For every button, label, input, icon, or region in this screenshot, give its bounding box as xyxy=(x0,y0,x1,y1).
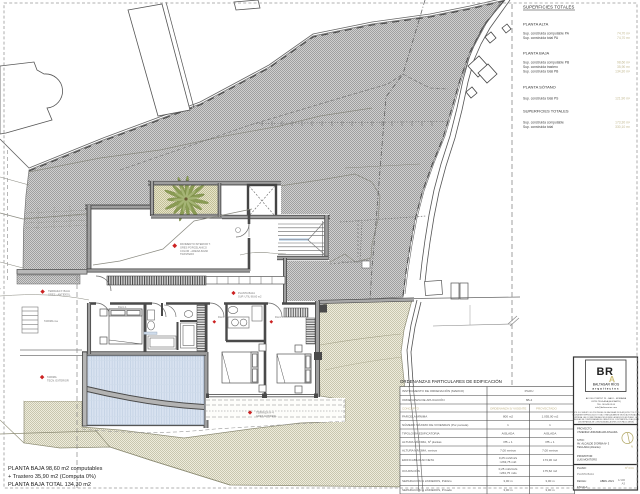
svg-text:Sup. construida total PS: Sup. construida total PS xyxy=(523,97,559,101)
svg-text:PLANTA BAJA: PLANTA BAJA xyxy=(577,472,594,476)
svg-text:Sup. construida computable PA: Sup. construida computable PA xyxy=(523,32,570,36)
svg-text:74,70 m²: 74,70 m² xyxy=(617,36,631,40)
svg-text:PROYECTO:: PROYECTO: xyxy=(577,427,593,431)
svg-text:GRES ANTIDESL.: GRES ANTIDESL. xyxy=(256,414,278,418)
svg-text:Sup. construida trastero: Sup. construida trastero xyxy=(523,65,558,69)
svg-text:NÚMERO MÁXIMO DE VIVIENDAS (Po: NÚMERO MÁXIMO DE VIVIENDAS (Por parcela) xyxy=(402,422,468,427)
svg-text:330,10 m²: 330,10 m² xyxy=(615,125,631,129)
svg-text:PAVIMENTO INTERIOR T.: PAVIMENTO INTERIOR T. xyxy=(180,242,211,246)
svg-text:OCUPACIÓN: OCUPACIÓN xyxy=(402,468,420,473)
svg-text:173,30 m2: 173,30 m2 xyxy=(543,458,558,462)
svg-text:FECHA:: FECHA: xyxy=(577,479,587,483)
svg-text:COLOR - ARENA 60x60: COLOR - ARENA 60x60 xyxy=(180,249,209,253)
svg-text:PLANTA BAJA: PLANTA BAJA xyxy=(238,291,255,295)
svg-text:Nº 03.b: Nº 03.b xyxy=(625,466,635,470)
svg-text:INSTRUMENTO DE ORDENACIÓN (MAR: INSTRUMENTO DE ORDENACIÓN (MARCO) xyxy=(402,388,464,393)
svg-text:Dorm 2: Dorm 2 xyxy=(218,315,227,319)
svg-text:TARIMA: TARIMA xyxy=(47,375,57,379)
svg-text:TARIMA ma: TARIMA ma xyxy=(44,319,58,323)
svg-text:GRES - ANTIDESL.: GRES - ANTIDESL. xyxy=(48,292,71,296)
svg-text:LUIS MONTORO: LUIS MONTORO xyxy=(577,458,597,462)
svg-text:PROMOTOR:: PROMOTOR: xyxy=(577,454,593,458)
svg-text:PLANTA ALTA: PLANTA ALTA xyxy=(523,22,549,27)
svg-text:AISLADA: AISLADA xyxy=(544,432,557,436)
svg-text:PLANTA BAJA: PLANTA BAJA xyxy=(523,51,549,56)
svg-text:1.055,00 m2: 1.055,00 m2 xyxy=(542,415,559,419)
svg-text:PB + 1: PB + 1 xyxy=(503,440,512,444)
svg-text:121,90 m²: 121,90 m² xyxy=(615,97,631,101)
svg-text:7,00 metros: 7,00 metros xyxy=(500,449,516,453)
svg-text:AISLADA: AISLADA xyxy=(502,432,515,436)
svg-text:arquitectos: arquitectos xyxy=(592,386,619,390)
svg-text:PLANTA BAJA TOTAL 134,30 m2: PLANTA BAJA TOTAL 134,30 m2 xyxy=(8,482,91,488)
svg-text:TERRAZA Nº 4: TERRAZA Nº 4 xyxy=(256,411,274,415)
svg-text:GRES PORCELANICO: GRES PORCELANICO xyxy=(180,245,207,249)
svg-text:VIVIENDA UNIFAMILIAR AISLADA: VIVIENDA UNIFAMILIAR AISLADA xyxy=(577,430,618,434)
svg-text:SITIO:: SITIO: xyxy=(577,438,585,442)
svg-text:Sup. construida total PA: Sup. construida total PA xyxy=(523,36,559,40)
svg-text:TIPOLOGÍA EDIFICATORIA: TIPOLOGÍA EDIFICATORIA xyxy=(402,432,440,436)
svg-text:3,00 m: 3,00 m xyxy=(503,488,513,492)
svg-text:134,30 m²: 134,30 m² xyxy=(615,69,631,73)
svg-text:PLANO:: PLANO: xyxy=(577,466,587,470)
svg-text:PROYECTADO: PROYECTADO xyxy=(536,407,557,411)
svg-text:TEL. 96 649 03 06: TEL. 96 649 03 06 xyxy=(597,404,616,406)
svg-text:A3: A3 xyxy=(622,482,626,486)
svg-text:PB + 1: PB + 1 xyxy=(545,440,554,444)
svg-text:03724 TEULADA (ALICANTE): 03724 TEULADA (ALICANTE) xyxy=(591,400,621,403)
svg-text:TEULADA (Alicante): TEULADA (Alicante) xyxy=(577,445,601,449)
svg-text:TRASTERO: TRASTERO xyxy=(180,252,194,256)
svg-text:SUPERFICIES TOTALES: SUPERFICIES TOTALES xyxy=(523,109,569,114)
svg-text:AV. DEL PORTET 25 - BAJO - MOR: AV. DEL PORTET 25 - BAJO - MORAIRA xyxy=(586,397,627,400)
svg-text:Sup. construida computable PB: Sup. construida computable PB xyxy=(523,61,570,65)
svg-text:173,30 m²: 173,30 m² xyxy=(615,121,631,125)
svg-text:3,00 m: 3,00 m xyxy=(503,479,513,483)
svg-text:+ Trastero 35,90 m2 (Computa 0: + Trastero 35,90 m2 (Computa 0%) xyxy=(8,474,96,480)
svg-text:AV. ALCALDE D'ORBA Nº 3: AV. ALCALDE D'ORBA Nº 3 xyxy=(577,442,610,446)
svg-text:ALTURA MÁXIMA, Nº plantas: ALTURA MÁXIMA, Nº plantas xyxy=(402,440,442,444)
svg-text:SUPERFICIES TOTALES: SUPERFICIES TOTALES xyxy=(523,5,575,10)
svg-text:DISCREPANCIA SE COMUNICARA A L: DISCREPANCIA SE COMUNICARA A LA DIRECCIO… xyxy=(578,421,635,424)
svg-text:Sup. construida total PB: Sup. construida total PB xyxy=(523,69,559,73)
svg-text:≈263,75 m2t: ≈263,75 m2t xyxy=(500,460,517,464)
svg-text:ORDENANZA DE APLICACIÓN: ORDENANZA DE APLICACIÓN xyxy=(402,397,445,402)
svg-text:≈263,75 m2s: ≈263,75 m2s xyxy=(499,471,517,475)
svg-text:info@baltasarrios.com: info@baltasarrios.com xyxy=(595,406,617,409)
svg-text:Sup. construida total: Sup. construida total xyxy=(523,125,553,129)
svg-text:ALTURA MÁXIMA, metros: ALTURA MÁXIMA, metros xyxy=(402,449,437,453)
svg-text:Dorm 1: Dorm 1 xyxy=(118,305,127,309)
svg-text:Sup. construida computable: Sup. construida computable xyxy=(523,121,564,125)
svg-text:TERRAZA P. BAJA: TERRAZA P. BAJA xyxy=(48,289,70,293)
svg-text:Dorm 3: Dorm 3 xyxy=(275,315,284,319)
svg-text:3,00 m: 3,00 m xyxy=(545,479,555,483)
svg-text:98,60 m²: 98,60 m² xyxy=(617,61,631,65)
svg-text:175,62 m2: 175,62 m2 xyxy=(543,469,558,473)
svg-text:CONCEPTO: CONCEPTO xyxy=(402,407,420,411)
svg-text:PGOU: PGOU xyxy=(525,389,534,393)
svg-text:800 m2: 800 m2 xyxy=(503,415,513,419)
svg-text:N: N xyxy=(631,445,633,449)
svg-text:PLANTA BAJA 98,60 m2 computabl: PLANTA BAJA 98,60 m2 computables xyxy=(8,466,103,472)
svg-text:6B-4: 6B-4 xyxy=(526,398,533,402)
svg-text:TECN. EXTERIOR: TECN. EXTERIOR xyxy=(47,378,69,382)
svg-text:74,70 m²: 74,70 m² xyxy=(617,32,631,36)
svg-text:SEPARACIÓN A LINDEROS, Público: SEPARACIÓN A LINDEROS, Público xyxy=(402,478,452,483)
svg-text:EDIFICABILIDAD NETA: EDIFICABILIDAD NETA xyxy=(402,458,434,462)
svg-text:PARCELA MÍNIMA: PARCELA MÍNIMA xyxy=(402,415,427,419)
svg-text:ABRIL 2021: ABRIL 2021 xyxy=(600,479,614,483)
svg-text:7,00 metros: 7,00 metros xyxy=(542,449,558,453)
svg-text:3,00 m: 3,00 m xyxy=(545,488,555,492)
svg-text:PLANTA SÓTANO: PLANTA SÓTANO xyxy=(523,85,556,90)
svg-text:35,90 m²: 35,90 m² xyxy=(617,65,631,69)
svg-text:SUP. UTIL 98,60 m2: SUP. UTIL 98,60 m2 xyxy=(238,294,262,298)
svg-text:ORDENANZAS PARTICULARES DE EDI: ORDENANZAS PARTICULARES DE EDIFICACIÓN xyxy=(400,379,502,384)
svg-text:ORDENANZA S/ VIGENTE: ORDENANZA S/ VIGENTE xyxy=(490,407,526,411)
